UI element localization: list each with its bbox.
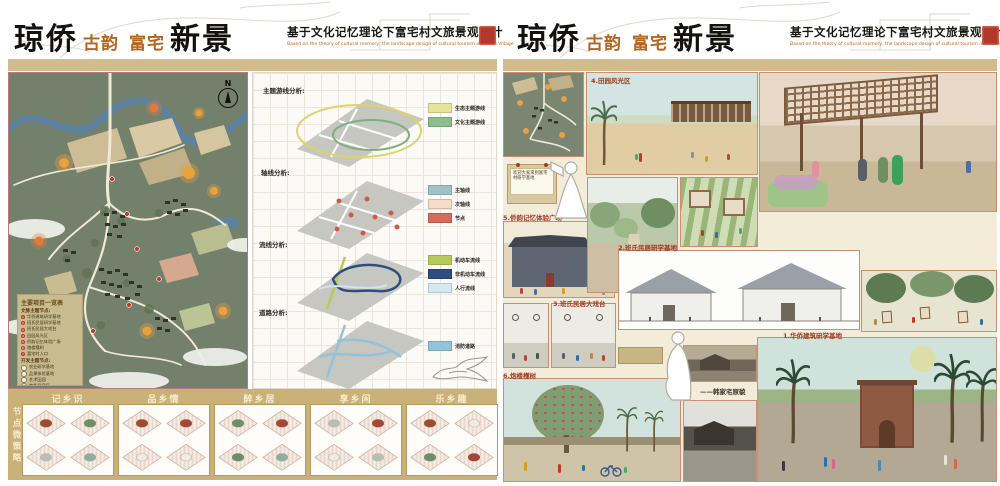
strategy-thumbnail bbox=[26, 410, 66, 437]
strategy-thumbnail bbox=[166, 410, 206, 437]
left-panel-header: 琼侨 古韵 富宅 新景 基于文化记忆理论下富宅村文旅景观设计 Based on … bbox=[0, 0, 497, 60]
person-figure bbox=[602, 355, 605, 361]
rendering-collage: 4.田园风光区 欢迎大家来到富宅村研学基地 bbox=[503, 72, 997, 482]
right-panel-header: 琼侨 古韵 富宅 新景 基于文化记忆理论下富宅村文旅景观设计 Based on … bbox=[503, 0, 1000, 60]
wooden-frame bbox=[689, 190, 711, 208]
person-figure bbox=[562, 353, 565, 359]
person-figure bbox=[966, 161, 971, 173]
rendering-label-2: 2.班氏民居研学基地 bbox=[618, 242, 677, 252]
elevation-drawing bbox=[618, 250, 860, 330]
person-figure bbox=[562, 288, 565, 294]
wall-window bbox=[533, 314, 540, 321]
rendering-pergola-plaza bbox=[759, 72, 997, 212]
pergola-column bbox=[800, 113, 803, 171]
person-figure bbox=[624, 467, 627, 473]
legend-row: 消防道路 bbox=[428, 341, 498, 351]
open-dot-icon bbox=[21, 377, 27, 383]
numbered-dot-icon: 4 bbox=[21, 334, 25, 338]
rendering-label-6: 6.炮楼槿树 bbox=[503, 370, 536, 380]
legend-swatch bbox=[428, 199, 452, 209]
legend-swatch bbox=[428, 117, 452, 127]
title-part-1: 琼侨 bbox=[517, 14, 581, 58]
tree-canopy bbox=[954, 275, 994, 303]
legend-item-label: 特色民宿区 bbox=[29, 383, 50, 386]
strategy-thumbnail bbox=[262, 410, 302, 437]
bicycle-icon bbox=[600, 463, 622, 477]
strategy-band: 节点微策略 记乡识 品乡情 醉乡居 享乡闲 乐乡趣 bbox=[8, 389, 497, 480]
old-house-shape bbox=[694, 421, 734, 445]
strategy-thumbnail bbox=[218, 444, 258, 471]
legend-name: 文化主题游线 bbox=[455, 119, 485, 126]
poster-board: { "header": { "title": {"part1": "琼侨", "… bbox=[0, 0, 1000, 486]
person-figure bbox=[892, 155, 903, 185]
wall-window bbox=[512, 314, 519, 321]
rendering-heritage-tree bbox=[503, 378, 681, 482]
legend-name: 机动车流线 bbox=[455, 257, 480, 264]
strategy-thumbnail bbox=[410, 444, 450, 471]
rendering-label-4: 4.田园风光区 bbox=[591, 75, 631, 85]
person-figure bbox=[639, 153, 642, 162]
legend-swatch bbox=[428, 103, 452, 113]
elevation-art bbox=[619, 251, 859, 329]
legend-row: 生态主题游线 bbox=[428, 103, 498, 113]
seal-stamp bbox=[479, 26, 496, 45]
strategy-thumbnail bbox=[122, 444, 162, 471]
mini-map-art bbox=[504, 73, 583, 156]
person-figure bbox=[701, 230, 704, 236]
legend-item-label: 富宅村入口 bbox=[27, 351, 48, 357]
easel bbox=[958, 311, 969, 324]
rendering-field-view: 4.田园风光区 bbox=[586, 72, 758, 175]
palm-tree-icon bbox=[591, 97, 617, 167]
strategy-thumbnail bbox=[358, 444, 398, 471]
open-dot-icon bbox=[21, 371, 27, 377]
person-figure bbox=[512, 353, 515, 359]
legend-name: 节点 bbox=[455, 215, 465, 222]
strategy-thumbnail bbox=[410, 410, 450, 437]
person-figure bbox=[824, 457, 827, 467]
legend-title: 主要项目一览表 bbox=[21, 298, 79, 307]
master-plan-map: N 主要项目一览表 文脉主题节点: 1华侨建筑研学基地 2班氏民居研学基地 3班… bbox=[8, 72, 248, 389]
person-figure bbox=[520, 288, 523, 294]
rendering-farm-study bbox=[680, 177, 758, 247]
sun bbox=[910, 346, 936, 372]
rendering-courtyard-1 bbox=[503, 303, 549, 368]
legend-name: 次轴线 bbox=[455, 201, 470, 208]
map-legend: 主要项目一览表 文脉主题节点: 1华侨建筑研学基地 2班氏民居研学基地 3班氏民… bbox=[17, 294, 83, 386]
strategy-thumbnail bbox=[218, 410, 258, 437]
legend-swatch bbox=[428, 283, 452, 293]
title-part-4: 新景 bbox=[170, 14, 234, 58]
poster-title: 琼侨 古韵 富宅 新景 bbox=[14, 14, 234, 58]
person-figure bbox=[534, 289, 537, 295]
old-house-shape bbox=[700, 354, 730, 370]
tree-canopy bbox=[910, 271, 954, 297]
strategy-thumbnail bbox=[26, 444, 66, 471]
rendering-courtyard-2 bbox=[551, 303, 616, 368]
person-figure bbox=[727, 154, 730, 160]
analysis-column: 主题游线分析: 生态主题游线 文化主题游线 轴线分析: 主轴线 次轴线 节点 流… bbox=[252, 72, 497, 389]
numbered-dot-icon: 7 bbox=[21, 352, 25, 356]
palm-tree-icon bbox=[934, 346, 970, 448]
person-figure bbox=[878, 460, 881, 471]
person-figure bbox=[590, 353, 593, 359]
title-part-2: 古韵 bbox=[83, 29, 119, 54]
open-dot-icon bbox=[21, 383, 27, 386]
person-figure bbox=[878, 157, 888, 183]
strategy-thumbnail bbox=[454, 410, 494, 437]
seal-stamp bbox=[982, 26, 999, 45]
legend-swatch bbox=[428, 269, 452, 279]
analysis-legend-4: 消防道路 bbox=[428, 341, 498, 355]
legend-swatch bbox=[428, 255, 452, 265]
person-figure bbox=[558, 464, 561, 473]
subtitle-block: 基于文化记忆理论下富宅村文旅景观设计 Based on the theory o… bbox=[790, 24, 982, 47]
megaphone-girl-silhouette bbox=[547, 156, 591, 222]
road-diagram bbox=[279, 313, 429, 393]
legend-name: 主轴线 bbox=[455, 187, 470, 194]
person-figure bbox=[782, 461, 785, 471]
strategy-thumbnail bbox=[70, 444, 110, 471]
strategy-box-3 bbox=[214, 404, 306, 476]
person-figure bbox=[954, 459, 957, 469]
title-part-4: 新景 bbox=[673, 14, 737, 58]
strategy-thumbnail bbox=[122, 410, 162, 437]
brick-gate-tower bbox=[860, 384, 914, 448]
person-figure bbox=[858, 159, 867, 181]
legend-swatch bbox=[428, 213, 452, 223]
easel bbox=[882, 311, 893, 324]
legend-swatch bbox=[428, 185, 452, 195]
legend-row: 人行流线 bbox=[428, 283, 498, 293]
subtitle-block: 基于文化记忆理论下富宅村文旅景观设计 Based on the theory o… bbox=[287, 24, 479, 47]
legend-row: 次轴线 bbox=[428, 199, 498, 209]
person-figure bbox=[705, 156, 708, 162]
person-figure bbox=[812, 161, 819, 177]
person-figure bbox=[739, 228, 742, 234]
palm-tree-icon bbox=[644, 405, 664, 453]
person-figure bbox=[912, 317, 915, 323]
title-part-2: 古韵 bbox=[586, 29, 622, 54]
theme-route-diagram bbox=[279, 91, 429, 171]
analysis-legend-1: 生态主题游线 文化主题游线 bbox=[428, 103, 498, 131]
right-tan-divider bbox=[503, 59, 997, 71]
poster-title: 琼侨 古韵 富宅 新景 bbox=[517, 14, 737, 58]
strategy-box-4 bbox=[310, 404, 402, 476]
palm-tree-icon bbox=[966, 354, 997, 448]
tree-canopy bbox=[866, 273, 906, 303]
person-figure bbox=[832, 459, 835, 469]
legend-item: 特色民宿区 bbox=[21, 383, 79, 386]
flower-bed bbox=[774, 175, 818, 189]
numbered-dot-icon: 5 bbox=[21, 340, 25, 344]
rendering-painting-grove bbox=[861, 270, 997, 332]
person-figure bbox=[874, 319, 877, 325]
numbered-dot-icon: 3 bbox=[21, 328, 25, 332]
rendering-label-1: 1.华侨建筑研学基地 bbox=[783, 330, 842, 340]
strategy-thumbnail bbox=[70, 410, 110, 437]
analysis-legend-3: 机动车流线 非机动车流线 人行流线 bbox=[428, 255, 498, 297]
person-figure bbox=[524, 355, 527, 361]
legend-row: 节点 bbox=[428, 213, 498, 223]
rendering-label-3: 3.班氏民居大戏台 bbox=[553, 298, 606, 308]
palm-tree-icon bbox=[616, 401, 638, 453]
subtitle-chinese: 基于文化记忆理论下富宅村文旅景观设计 bbox=[790, 24, 982, 40]
heritage-house bbox=[512, 247, 588, 287]
person-figure bbox=[635, 154, 638, 160]
legend-row: 机动车流线 bbox=[428, 255, 498, 265]
title-part-3: 富宅 bbox=[129, 29, 165, 54]
rendering-overseas-gate bbox=[757, 337, 997, 482]
legend-item: 7富宅村入口 bbox=[21, 351, 79, 357]
strategy-thumbnail bbox=[314, 444, 354, 471]
numbered-dot-icon: 1 bbox=[21, 315, 25, 319]
strategy-box-2 bbox=[118, 404, 210, 476]
person-figure bbox=[582, 465, 585, 471]
person-figure bbox=[715, 232, 718, 238]
legend-name: 非机动车流线 bbox=[455, 271, 485, 278]
photo-caption: ——韩家宅原貌 bbox=[700, 386, 746, 396]
analysis-legend-2: 主轴线 次轴线 节点 bbox=[428, 185, 498, 227]
person-figure bbox=[691, 152, 694, 158]
axis-diagram bbox=[279, 173, 429, 253]
old-photo-bw bbox=[683, 400, 757, 482]
north-label: N bbox=[217, 79, 239, 88]
subtitle-english: Based on the theory of cultural memory, … bbox=[287, 42, 479, 47]
pergola-column bbox=[920, 113, 923, 169]
strategy-thumbnail bbox=[454, 444, 494, 471]
mini-plan-map bbox=[503, 72, 584, 157]
person-figure bbox=[524, 462, 527, 471]
strategy-box-5 bbox=[406, 404, 498, 476]
pin-icon bbox=[516, 163, 520, 167]
wall-window bbox=[596, 314, 603, 321]
compass-icon bbox=[218, 88, 238, 108]
open-dot-icon bbox=[21, 365, 27, 371]
legend-row: 文化主题游线 bbox=[428, 117, 498, 127]
sitting-figure-silhouette bbox=[658, 330, 696, 402]
legend-swatch bbox=[428, 341, 452, 351]
caption-box bbox=[618, 347, 663, 364]
strategy-thumbnail bbox=[314, 410, 354, 437]
subtitle-chinese: 基于文化记忆理论下富宅村文旅景观设计 bbox=[287, 24, 479, 40]
wall-window bbox=[564, 314, 571, 321]
numbered-dot-icon: 2 bbox=[21, 321, 25, 325]
person-figure bbox=[944, 455, 947, 465]
strategy-box-1 bbox=[22, 404, 114, 476]
strategy-thumbnail bbox=[358, 410, 398, 437]
left-tan-divider bbox=[8, 59, 497, 71]
palm-tree-icon bbox=[776, 352, 810, 448]
person-figure bbox=[576, 355, 579, 361]
house-door bbox=[546, 273, 554, 287]
legend-name: 生态主题游线 bbox=[455, 105, 485, 112]
legend-row: 主轴线 bbox=[428, 185, 498, 195]
easel bbox=[920, 307, 931, 320]
title-part-1: 琼侨 bbox=[14, 14, 78, 58]
person-figure bbox=[980, 319, 983, 325]
north-arrow: N bbox=[217, 79, 239, 109]
numbered-dot-icon: 6 bbox=[21, 346, 25, 350]
title-part-3: 富宅 bbox=[632, 29, 668, 54]
legend-row: 非机动车流线 bbox=[428, 269, 498, 279]
subtitle-english: Based on the theory of cultural memory, … bbox=[790, 42, 982, 47]
legend-name: 消防道路 bbox=[455, 343, 475, 350]
strategy-side-label: 节点微策略 bbox=[10, 407, 22, 465]
strategy-thumbnail bbox=[166, 444, 206, 471]
wooden-frame bbox=[723, 198, 745, 216]
strategy-thumbnail bbox=[262, 444, 302, 471]
legend-name: 人行流线 bbox=[455, 285, 475, 292]
bird-sketch-icon bbox=[429, 355, 491, 387]
pavilion-structure bbox=[671, 101, 751, 122]
person-figure bbox=[536, 353, 539, 359]
tree-canopy bbox=[641, 198, 675, 228]
